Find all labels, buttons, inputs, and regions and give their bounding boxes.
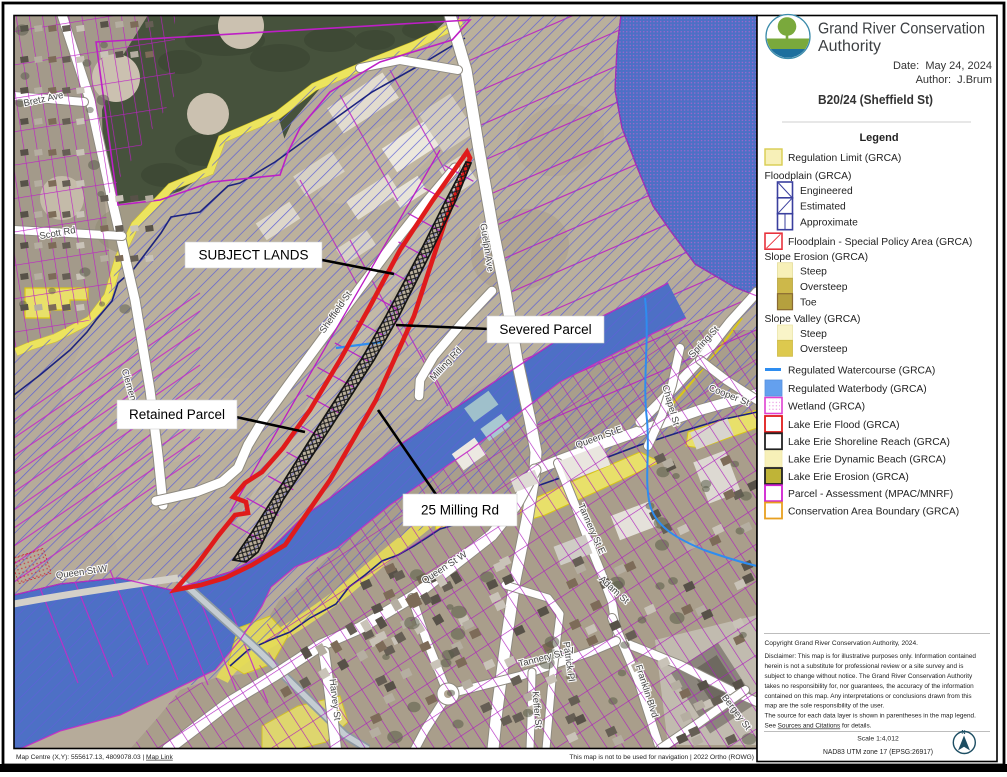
svg-text:Author: J.Brum: Author: J.Brum	[916, 74, 992, 86]
svg-text:N: N	[962, 730, 966, 736]
svg-text:Engineered: Engineered	[800, 186, 853, 197]
svg-text:Date: May 24, 2024: Date: May 24, 2024	[893, 60, 992, 72]
svg-text:Regulation Limit (GRCA): Regulation Limit (GRCA)	[788, 153, 901, 164]
svg-text:This map is not to be used for: This map is not to be used for navigatio…	[569, 754, 754, 761]
svg-text:Disclaimer: This map is for il: Disclaimer: This map is for illustrative…	[765, 653, 977, 660]
svg-text:Authority: Authority	[818, 38, 881, 55]
svg-text:Approximate: Approximate	[800, 218, 858, 229]
svg-text:Lake Erie Erosion (GRCA): Lake Erie Erosion (GRCA)	[788, 472, 909, 483]
svg-text:Retained Parcel: Retained Parcel	[129, 407, 225, 422]
svg-text:B20/24 (Sheffield St): B20/24 (Sheffield St)	[818, 92, 933, 107]
svg-text:Oversteep: Oversteep	[800, 344, 848, 355]
svg-text:Steep: Steep	[800, 329, 827, 340]
svg-text:contained on this map. Any int: contained on this map. Any interpretatio…	[765, 693, 972, 700]
svg-text:Parcel - Assessment (MPAC/MNRF: Parcel - Assessment (MPAC/MNRF)	[788, 489, 953, 500]
svg-text:Lake Erie Dynamic Beach (GRCA): Lake Erie Dynamic Beach (GRCA)	[788, 454, 946, 465]
svg-text:Estimated: Estimated	[800, 202, 846, 213]
svg-text:The source for each data layer: The source for each data layer is shown …	[765, 713, 977, 720]
svg-text:NAD83 UTM zone 17 (EPSG:26917): NAD83 UTM zone 17 (EPSG:26917)	[823, 749, 933, 756]
svg-text:Floodplain - Special Policy Ar: Floodplain - Special Policy Area (GRCA)	[788, 237, 972, 248]
svg-text:Regulated Waterbody (GRCA): Regulated Waterbody (GRCA)	[788, 384, 927, 395]
svg-text:Slope Erosion (GRCA): Slope Erosion (GRCA)	[765, 252, 869, 263]
svg-text:Wetland (GRCA): Wetland (GRCA)	[788, 401, 865, 412]
svg-text:Legend: Legend	[859, 132, 898, 144]
svg-text:Slope Valley (GRCA): Slope Valley (GRCA)	[765, 314, 861, 325]
svg-text:See Sources and Citations for: See Sources and Citations for details.	[765, 723, 872, 730]
svg-text:Regulated Watercourse (GRCA): Regulated Watercourse (GRCA)	[788, 365, 935, 376]
svg-text:Copyright Grand River Conserva: Copyright Grand River Conservation Autho…	[765, 640, 919, 647]
svg-text:Floodplain (GRCA): Floodplain (GRCA)	[765, 171, 852, 182]
svg-text:Severed Parcel: Severed Parcel	[499, 322, 591, 337]
svg-text:Grand River Conservation: Grand River Conservation	[818, 21, 985, 38]
svg-text:subject to change without noti: subject to change without notice. The Gr…	[765, 673, 973, 680]
svg-text:herein is not a substitute for: herein is not a substitute for professio…	[765, 663, 964, 670]
svg-text:Lake Erie Shoreline Reach (GRC: Lake Erie Shoreline Reach (GRCA)	[788, 437, 950, 448]
svg-text:Map Centre (X,Y): 555617.13, 4: Map Centre (X,Y): 555617.13, 4809078.03 …	[16, 754, 173, 761]
svg-text:Lake Erie Flood (GRCA): Lake Erie Flood (GRCA)	[788, 420, 900, 431]
svg-text:Conservation Area Boundary (GR: Conservation Area Boundary (GRCA)	[788, 506, 959, 517]
svg-text:Toe: Toe	[800, 298, 817, 309]
svg-text:SUBJECT LANDS: SUBJECT LANDS	[198, 248, 308, 263]
svg-text:map are the sole responsibilit: map are the sole responsibility of the u…	[765, 703, 885, 710]
svg-text:25 Milling Rd: 25 Milling Rd	[421, 503, 499, 518]
svg-text:takes no responsibility for, n: takes no responsibility for, nor guarant…	[765, 683, 975, 690]
svg-text:Oversteep: Oversteep	[800, 282, 848, 293]
svg-text:Steep: Steep	[800, 267, 827, 278]
svg-text:Scale 1:4,012: Scale 1:4,012	[857, 736, 899, 743]
